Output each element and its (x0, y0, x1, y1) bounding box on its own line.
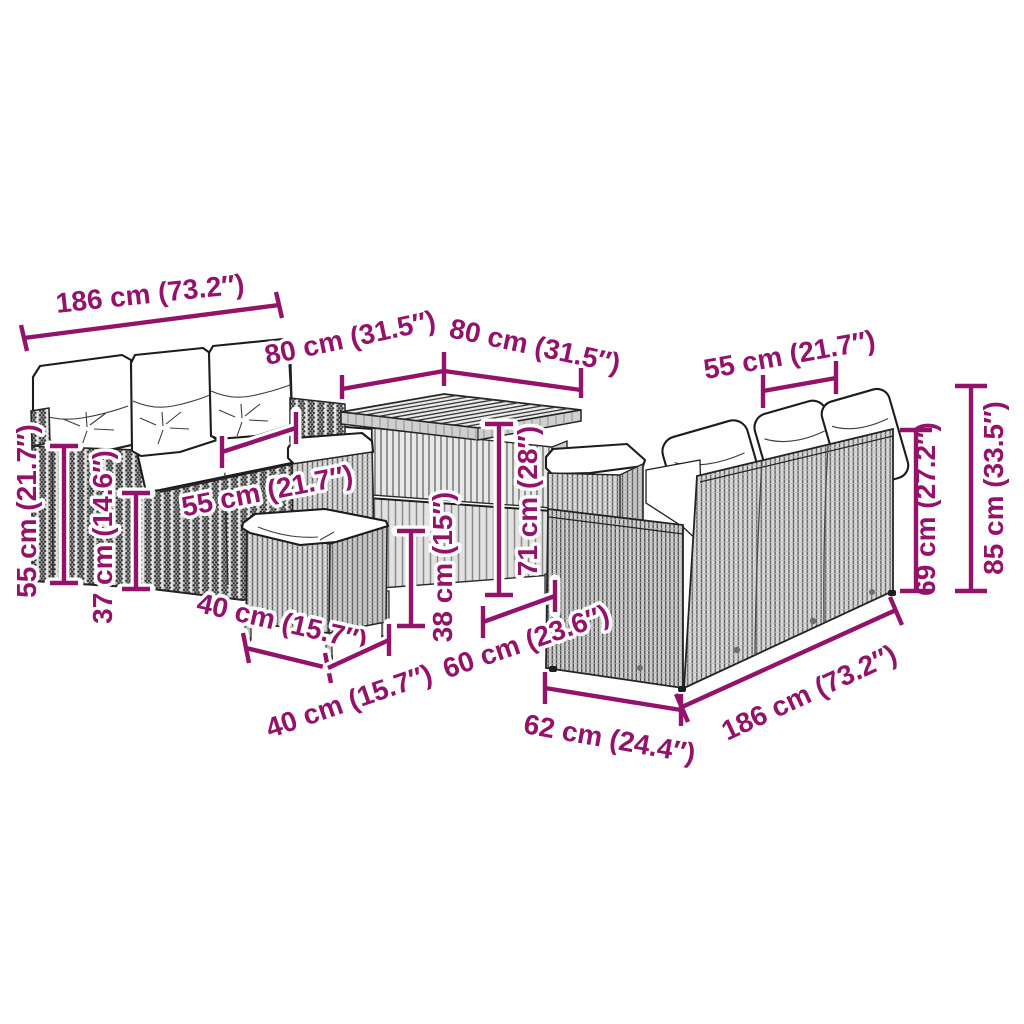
svg-text:85 cm (33.5″): 85 cm (33.5″) (978, 401, 1009, 575)
svg-text:37 cm (14.6″): 37 cm (14.6″) (87, 450, 118, 624)
svg-text:55 cm (21.7″): 55 cm (21.7″) (11, 424, 42, 598)
svg-text:38 cm (15″): 38 cm (15″) (427, 492, 458, 642)
svg-text:71 cm (28″): 71 cm (28″) (512, 426, 543, 576)
